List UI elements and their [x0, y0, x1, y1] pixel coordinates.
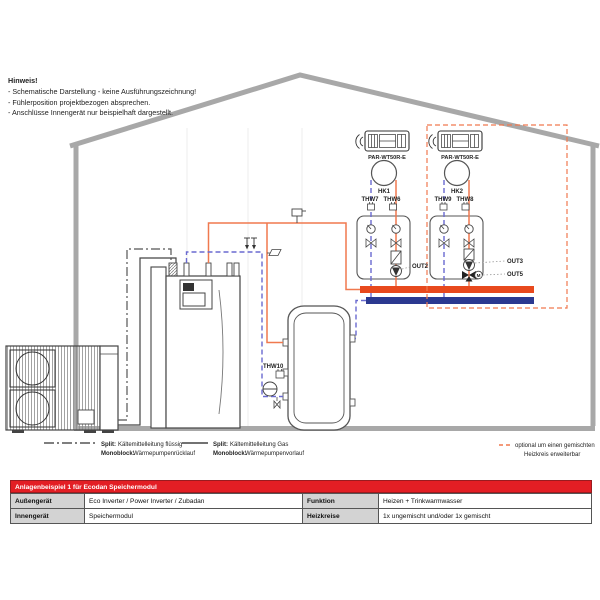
hk2-zone-circle: [445, 161, 470, 186]
wireless-waves-icon: [429, 135, 433, 149]
indoor-unit-display: [180, 280, 212, 309]
hinweis-line: - Schematische Darstellung - keine Ausfü…: [8, 87, 196, 98]
flow-manifold-bar: [360, 286, 534, 293]
hk2-zone-label: HK2: [451, 189, 464, 195]
thw6-label: THW6: [384, 197, 402, 203]
drain-valve-icon: [274, 397, 280, 408]
wireless-waves-icon: [356, 135, 360, 149]
hinweis-line: - Anschlüsse Innengerät nur beispielhaft…: [8, 108, 196, 119]
legend1-monoblock-text: Wärmepumpenrücklauf: [133, 451, 195, 457]
mixer-motor-label: M: [477, 273, 481, 278]
legend: Split: Kältemittelleitung flüssig Monobl…: [44, 442, 595, 458]
spec-cell-label: Außengerät: [11, 493, 85, 508]
spec-cell-value: 1x ungemischt und/oder 1x gemischt: [379, 508, 592, 523]
spec-cell-label: Funktion: [303, 493, 379, 508]
legend2-monoblock-label: Monoblock:: [213, 451, 247, 457]
legend1-monoblock-label: Monoblock:: [101, 451, 135, 457]
thw7-label: THW7: [362, 197, 380, 203]
thw9-label: THW9: [435, 197, 453, 203]
thw10-label: THW10: [263, 364, 284, 370]
thw8-label: THW8: [457, 197, 475, 203]
legend2-monoblock-text: Wärmepumpenvorlauf: [245, 451, 304, 457]
legend1-split-text: Kältemittelleitung flüssig: [118, 442, 182, 448]
wireless-waves-icon: [360, 137, 363, 146]
air-vent-icon: [292, 209, 306, 223]
buffer-tank: [283, 306, 355, 430]
return-manifold-bar: [366, 297, 534, 304]
spec-cell-label: Heizkreise: [303, 508, 379, 523]
refrigerant-stub: [169, 263, 177, 276]
legend3-line1: optional um einen gemischten: [515, 443, 595, 449]
spec-table: Anlagenbeispiel 1 für Ecodan Speichermod…: [10, 480, 592, 524]
spec-cell-value: Eco Inverter / Power Inverter / Zubadan: [85, 493, 303, 508]
vent-flag-icon: [267, 250, 281, 256]
indoor-unit-speichermodul: [151, 263, 240, 428]
out2-label: OUT2: [412, 264, 429, 270]
hk1-zone-circle: [372, 161, 397, 186]
hk2-pump-group-box: [430, 216, 483, 279]
spec-table-header: Anlagenbeispiel 1 für Ecodan Speichermod…: [10, 480, 592, 493]
hk1-controller: [356, 131, 409, 151]
legend2-split-text: Kältemittelleitung Gas: [230, 442, 288, 448]
legend1-split-label: Split:: [101, 442, 116, 448]
hk1-controller-label: PAR-WT50R-E: [368, 155, 406, 161]
hk1-zone-label: HK1: [378, 189, 391, 195]
spec-cell-label: Innengerät: [11, 508, 85, 523]
hinweis-title: Hinweis!: [8, 76, 196, 87]
cold-water-arrows-icon: [244, 238, 257, 250]
out5-label: OUT5: [507, 272, 524, 278]
hinweis-note: Hinweis! - Schematische Darstellung - ke…: [8, 76, 196, 119]
wireless-waves-icon: [433, 137, 436, 146]
out3-label: OUT3: [507, 259, 524, 265]
spec-cell-value: Heizen + Trinkwarmwasser: [379, 493, 592, 508]
hk2-controller-label: PAR-WT50R-E: [441, 155, 479, 161]
thermometer-gauge-icon: [263, 382, 277, 396]
legend2-split-label: Split:: [213, 442, 228, 448]
hk1-pump-group-box: [357, 216, 410, 279]
schematic-page: M: [0, 0, 600, 600]
hk2-controller: [429, 131, 482, 151]
hinweis-line: - Fühlerposition projektbezogen absprech…: [8, 98, 196, 109]
legend3-line2: Heizkreis erweiterbar: [524, 452, 580, 458]
outdoor-unit-heatpump: [6, 346, 118, 433]
spec-cell-value: Speichermodul: [85, 508, 303, 523]
